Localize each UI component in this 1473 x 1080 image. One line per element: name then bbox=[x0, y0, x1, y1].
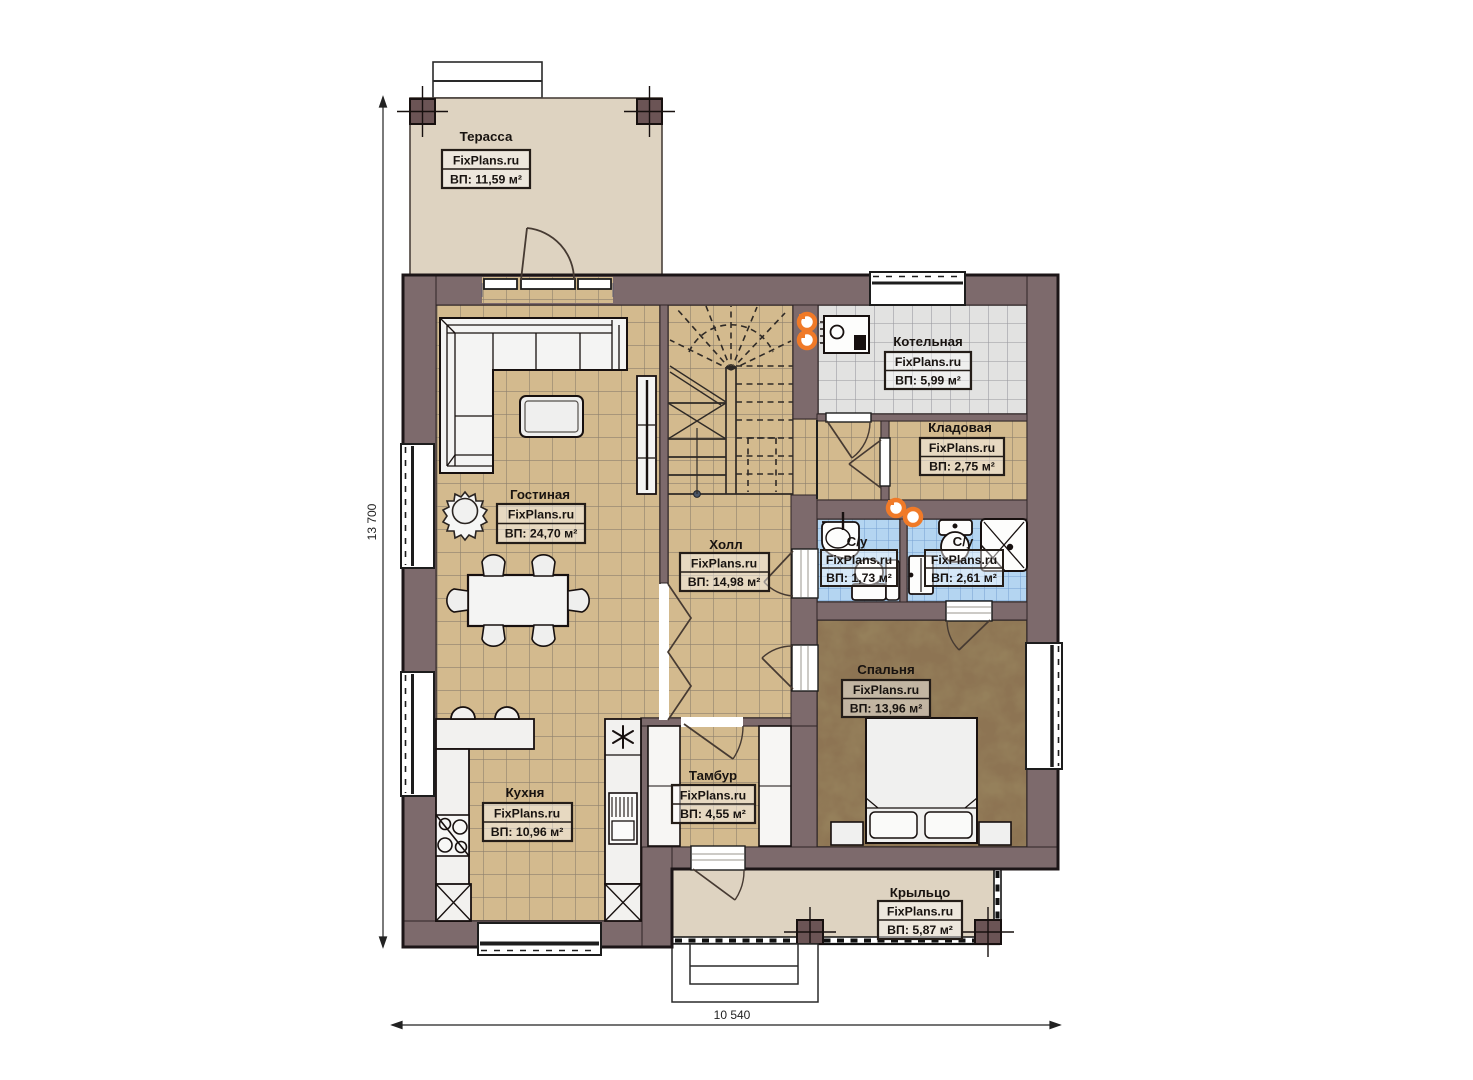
svg-text:ВП: 1,73 м²: ВП: 1,73 м² bbox=[826, 571, 892, 585]
svg-text:FixPlans.ru: FixPlans.ru bbox=[931, 553, 997, 567]
svg-text:ВП: 11,59 м²: ВП: 11,59 м² bbox=[450, 173, 522, 187]
svg-text:FixPlans.ru: FixPlans.ru bbox=[494, 807, 560, 821]
svg-text:FixPlans.ru: FixPlans.ru bbox=[508, 508, 574, 522]
svg-text:ВП: 2,75 м²: ВП: 2,75 м² bbox=[929, 460, 995, 474]
svg-text:ВП: 14,98 м²: ВП: 14,98 м² bbox=[688, 575, 761, 589]
svg-text:С/у: С/у bbox=[847, 534, 868, 549]
svg-text:FixPlans.ru: FixPlans.ru bbox=[453, 154, 519, 168]
svg-text:Тамбур: Тамбур bbox=[689, 768, 737, 783]
svg-text:Гостиная: Гостиная bbox=[510, 487, 570, 502]
svg-text:13 700: 13 700 bbox=[365, 503, 379, 540]
svg-text:ВП: 24,70 м²: ВП: 24,70 м² bbox=[505, 527, 578, 541]
svg-text:FixPlans.ru: FixPlans.ru bbox=[853, 683, 919, 697]
svg-text:ВП: 13,96 м²: ВП: 13,96 м² bbox=[850, 702, 923, 716]
svg-text:ВП: 10,96 м²: ВП: 10,96 м² bbox=[491, 825, 564, 839]
svg-text:Холл: Холл bbox=[709, 537, 742, 552]
svg-text:FixPlans.ru: FixPlans.ru bbox=[895, 355, 961, 369]
svg-text:ВП: 2,61 м²: ВП: 2,61 м² bbox=[931, 571, 997, 585]
svg-text:Спальня: Спальня bbox=[857, 662, 914, 677]
svg-text:Кладовая: Кладовая bbox=[928, 420, 992, 435]
svg-text:FixPlans.ru: FixPlans.ru bbox=[826, 553, 892, 567]
svg-text:FixPlans.ru: FixPlans.ru bbox=[929, 441, 995, 455]
svg-text:ВП: 4,55 м²: ВП: 4,55 м² bbox=[680, 807, 746, 821]
svg-text:FixPlans.ru: FixPlans.ru bbox=[887, 905, 953, 919]
svg-text:Крыльцо: Крыльцо bbox=[890, 885, 951, 900]
svg-text:Котельная: Котельная bbox=[893, 334, 963, 349]
svg-text:10 540: 10 540 bbox=[714, 1008, 751, 1022]
svg-text:С/у: С/у bbox=[953, 534, 974, 549]
svg-text:FixPlans.ru: FixPlans.ru bbox=[680, 789, 746, 803]
svg-text:ВП: 5,87 м²: ВП: 5,87 м² bbox=[887, 923, 953, 937]
svg-text:ВП: 5,99 м²: ВП: 5,99 м² bbox=[895, 374, 961, 388]
svg-text:Терасса: Терасса bbox=[460, 129, 513, 144]
svg-text:FixPlans.ru: FixPlans.ru bbox=[691, 557, 757, 571]
svg-text:Кухня: Кухня bbox=[506, 785, 545, 800]
